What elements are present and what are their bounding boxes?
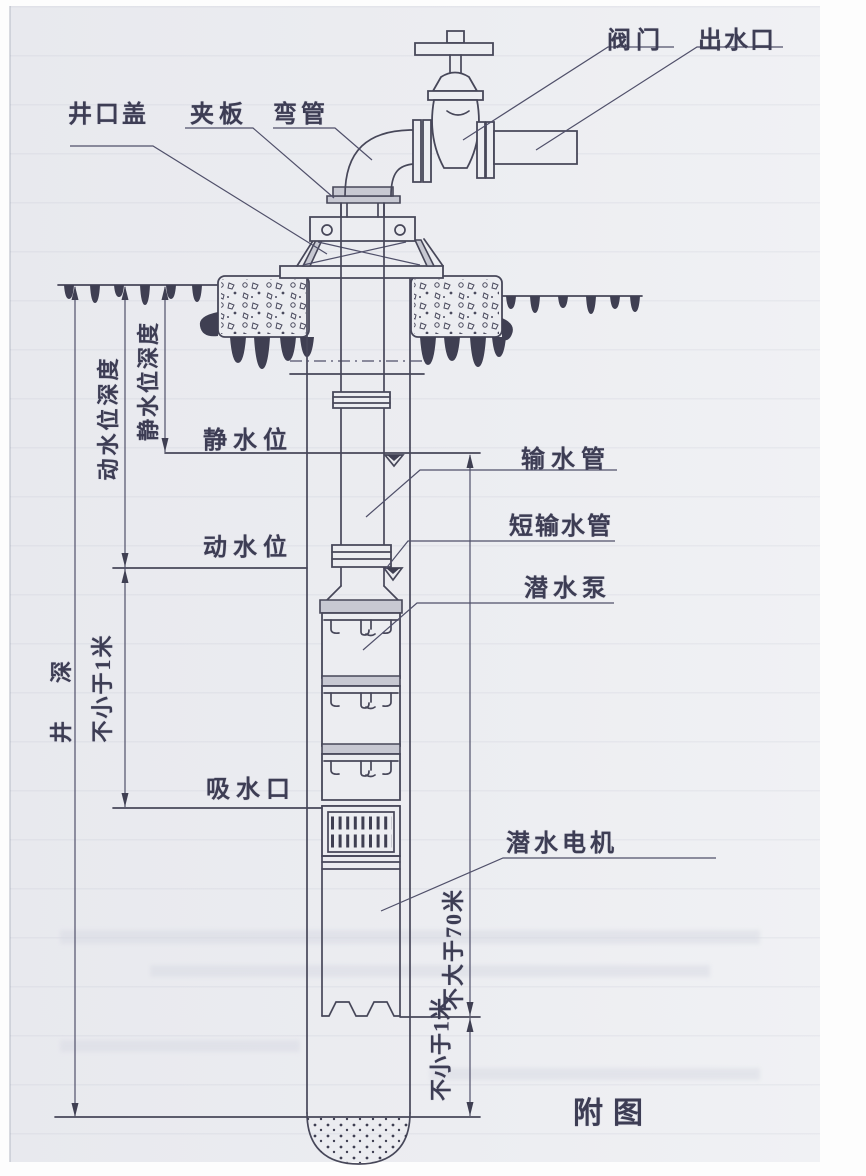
ground-surface <box>58 285 642 314</box>
suction-screen-shape <box>322 806 400 856</box>
submersible-motor-shape <box>322 856 400 1016</box>
label-outlet: 出水口 <box>698 20 776 55</box>
level-lines <box>113 453 480 1017</box>
clamp-plate-shape <box>327 196 400 203</box>
bend-pipe-shape <box>345 130 414 196</box>
label-submersible-motor: 潜水电机 <box>506 823 618 858</box>
dim-min-1m-bottom: 不小于1米 <box>424 987 456 1112</box>
concrete-collar <box>200 276 513 369</box>
label-clamp-plate: 夹板 <box>190 94 248 129</box>
label-bend-pipe: 弯管 <box>273 94 329 129</box>
label-static-water-level: 静水位 <box>203 420 293 455</box>
dim-dynamic-level-depth: 动水位深度 <box>91 348 123 488</box>
label-valve: 阀门 <box>607 20 665 55</box>
figure-caption: 附图 <box>573 1088 653 1132</box>
scanned-diagram-page: 阀门 出水口 井口盖 夹板 弯管 静水位 动水位 输水管 短输水管 潜水泵 吸水… <box>0 0 866 1176</box>
outlet-pipe-shape <box>494 131 577 164</box>
wellhead-assembly <box>280 187 443 278</box>
dim-static-level-depth: 静水位深度 <box>131 316 163 446</box>
valve-shape <box>413 31 494 182</box>
label-submersible-pump: 潜水泵 <box>524 568 611 603</box>
dim-min-1m-upper: 不小于1米 <box>85 623 117 753</box>
label-delivery-pipe: 输水管 <box>521 439 611 474</box>
submersible-pump-shape <box>320 600 402 806</box>
label-dynamic-water-level: 动水位 <box>203 527 293 562</box>
delivery-pipe-shape <box>327 203 398 600</box>
label-suction-inlet: 吸水口 <box>206 769 296 804</box>
dim-well-depth: 井 深 <box>44 638 76 758</box>
label-wellhead-cover: 井口盖 <box>68 94 149 129</box>
label-short-delivery-pipe: 短输水管 <box>509 506 613 541</box>
